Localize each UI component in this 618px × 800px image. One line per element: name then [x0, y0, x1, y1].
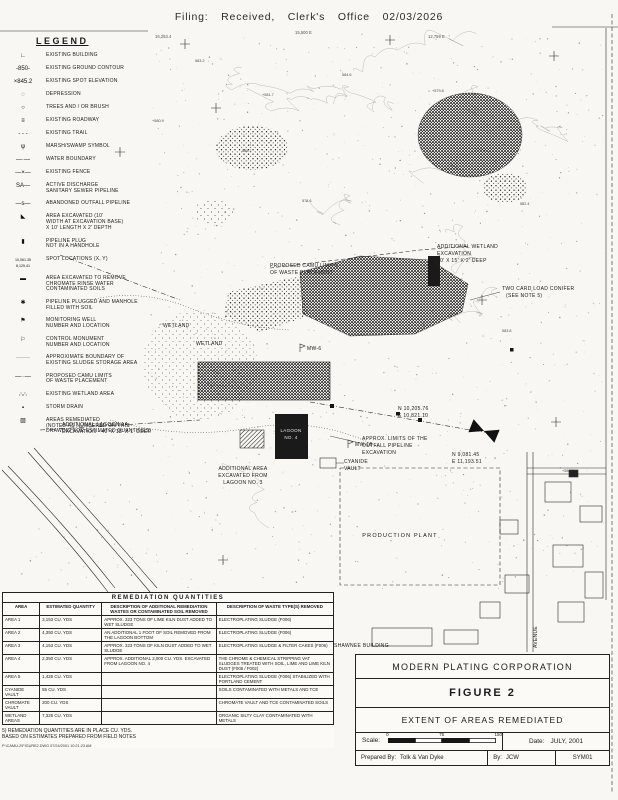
legend-item-label: WATER BOUNDARY	[46, 157, 96, 163]
table-cell: ELECTROPLATING SLUDGE (F006)	[216, 616, 333, 629]
table-cell: 55 CU. YDS	[40, 686, 102, 699]
legend-item-label: EXISTING ROADWAY	[46, 118, 99, 124]
excavated-arrow-icon: ◣	[6, 214, 40, 220]
pipeline-plug-icon: ▮	[6, 239, 40, 245]
depression-icon: ◌	[6, 92, 40, 98]
table-cell: AREA 3	[3, 642, 40, 655]
legend-item-label: MONITORING WELL NUMBER AND LOCATION	[46, 318, 110, 329]
date-cell: Date: JULY, 2001	[503, 733, 609, 750]
table-cell	[102, 712, 216, 725]
col-header-description: DESCRIPTION OF ADDITIONAL REMEDIATION WA…	[102, 603, 216, 616]
legend-item: —··—PROPOSED CAMU LIMITS OF WASTE PLACEM…	[6, 374, 176, 385]
brush-area-2	[216, 126, 288, 170]
roadway-southwest	[2, 448, 157, 592]
ground-contour-line	[334, 85, 394, 110]
camu-limits-label: PROPOSED CAMU LIMITS	[270, 263, 338, 269]
cad-footer: P:\CAMU-2\FIGURE2.DWG 07/24/2001 10:21:2…	[2, 744, 334, 748]
scale-bar-ticks: 0 75 150	[386, 732, 502, 737]
credits-row: Prepared By: Tolk & Van Dyke By: JCW SYM…	[356, 751, 609, 765]
legend-item-label: EXISTING BUILDING	[46, 53, 98, 59]
wetland-excavation-label: ADDITIONAL WETLAND	[437, 244, 498, 250]
scale-bar: 0 75 150	[388, 738, 496, 743]
legend-item-label: ACTIVE DISCHARGE SANITARY SEWER PIPELINE	[46, 183, 119, 194]
spot-coordinate-label: E 10,821.10	[398, 413, 428, 419]
spot-elevation-value: +581.7	[262, 93, 274, 97]
table-cell: APPROX. 323 TONS OF KILN DUST ADDED TO W…	[102, 642, 216, 655]
legend-item-label: DEPRESSION	[46, 92, 81, 98]
table-cell: APPROX. ADDITIONAL 2,000 CU. YDS. EXCAVA…	[102, 655, 216, 673]
trees-icon: ○	[6, 105, 40, 111]
table-cell: 4,350 CU. YDS	[40, 629, 102, 642]
by-value: JCW	[506, 755, 519, 761]
marsh-icon: ψ	[6, 144, 40, 150]
legend-item: —s—ABANDONED OUTFALL PIPELINE	[6, 201, 176, 207]
legend-item-label: EXISTING FENCE	[46, 170, 90, 176]
legend-item-label: TREES AND / OR BRUSH	[46, 105, 109, 111]
table-cell: WETLAND AREAS	[3, 712, 40, 725]
brush-area	[483, 173, 527, 203]
table-row: WETLAND AREAS7,325 CU. YDSORGANIC SILTY …	[3, 712, 334, 725]
table-cell: SOILS CONTAMINATED WITH METALS AND TCE	[216, 686, 333, 699]
spot-coordinate-label: N 9,081.45	[452, 452, 479, 458]
camu-limits-label: OF WASTE PLACEMENT	[270, 270, 333, 276]
fence-icon: —×—	[6, 170, 40, 176]
table-cell: APPROX. 323 TONS OF LIME KILN DUST ADDED…	[102, 616, 216, 629]
legend-item: ◌DEPRESSION	[6, 92, 176, 98]
avenue-street-label: AVENUE	[533, 626, 539, 648]
building-icon: ∟	[6, 53, 40, 59]
sewer-icon: SA—	[6, 183, 40, 189]
remediation-table: AREA ESTIMATED QUANTITY DESCRIPTION OF A…	[2, 602, 334, 725]
filing-stamp: Filing: Received, Clerk's Office 02/03/2…	[0, 11, 618, 23]
storm-drain-icon: ▪	[6, 405, 40, 411]
wetland-excavation-label: EXCAVATION	[437, 251, 471, 257]
drawing-number: SYM01	[573, 755, 593, 761]
production-plant-label: PRODUCTION PLANT	[362, 533, 437, 539]
ground-contour-line	[310, 194, 352, 225]
building-outlines	[372, 470, 603, 646]
table-header-row: AREA ESTIMATED QUANTITY DESCRIPTION OF A…	[3, 603, 334, 616]
spot-coordinates-icon: 10,061.35 8,125.41	[6, 257, 40, 269]
table-cell: AN ADDITIONAL 1 FOOT OF SOIL REMOVED FRO…	[102, 629, 216, 642]
table-cell: ELECTROPLATING SLUDGE (F006) STABILIZED …	[216, 673, 333, 686]
legend-item-label: AREAS REMEDIATED (NOTED AS NUMBERED ON T…	[46, 418, 151, 435]
table-title: REMEDIATION QUANTITIES	[2, 592, 334, 602]
spot-elevation-value: 583.8	[502, 329, 512, 333]
scale-tick: 0	[386, 732, 389, 737]
lagoon-3-label: EXCAVATED FROM	[218, 473, 267, 479]
ground-contour-line	[226, 67, 341, 93]
wetland-excavation-label: 40' X 15' X 2' DEEP	[437, 258, 487, 264]
table-row: AREA 34,153 CU. YDSAPPROX. 323 TONS OF K…	[3, 642, 334, 655]
table-row: AREA 24,350 CU. YDSAN ADDITIONAL 1 FOOT …	[3, 629, 334, 642]
legend-item: ○TREES AND / OR BRUSH	[6, 105, 176, 111]
table-cell: AREA 4	[3, 655, 40, 673]
legend-items: ∟EXISTING BUILDING-850-EXISTING GROUND C…	[6, 53, 176, 435]
lagoon-4-label: LAGOON	[280, 428, 301, 433]
table-cell	[102, 699, 216, 712]
storm-drain-symbol-2	[510, 348, 514, 352]
legend-item: ▨AREAS REMEDIATED (NOTED AS NUMBERED ON …	[6, 418, 176, 435]
sludge-boundary-icon: ·······	[6, 355, 40, 361]
spot-elevation-value: 583.2	[195, 59, 205, 63]
legend-item: ◣AREA EXCAVATED (10' WIDTH AT EXCAVATION…	[6, 214, 176, 231]
legend-item: ×845.2EXISTING SPOT ELEVATION	[6, 79, 176, 85]
legend-item-label: SPOT LOCATIONS (X, Y)	[46, 257, 108, 263]
legend-item-label: AREA EXCAVATED (10' WIDTH AT EXCAVATION …	[46, 214, 123, 231]
cyanide-vault-box	[320, 458, 336, 468]
table-cell: ORGANIC SILTY CLAY CONTAMINATED WITH MET…	[216, 712, 333, 725]
table-cell: CHROMATE VAULT	[3, 699, 40, 712]
title-block: MODERN PLATING CORPORATION FIGURE 2 EXTE…	[355, 654, 610, 766]
legend-item: -850-EXISTING GROUND CONTOUR	[6, 66, 176, 72]
table-cell	[102, 673, 216, 686]
legend-item-label: AREA EXCAVATED TO REMOVE CHROMATE RINSE …	[46, 276, 126, 293]
table-cell: ELECTROPLATING SLUDGE & FILTER CAKES (F0…	[216, 642, 333, 655]
wetland-label-2: WETLAND	[196, 341, 223, 347]
legend-item-label: PIPELINE PLUGGED AND MANHOLE FILLED WITH…	[46, 300, 138, 311]
prepared-by-value: Tolk & Van Dyke	[400, 755, 444, 761]
lagoon-4-label: NO. 4	[284, 435, 297, 440]
spot-elevation-value: 582.4	[520, 202, 530, 206]
grid-coordinate-label: 12,759 E	[428, 34, 445, 39]
wetland-area-icon: ∴∴	[6, 392, 40, 398]
table-cell: THE CHROME & CHEMICAL STRIPPING VAT SLUD…	[216, 655, 333, 673]
table-cell: 4,153 CU. YDS	[40, 642, 102, 655]
chromate-area-icon: ▬	[6, 276, 40, 282]
legend-item: - - -EXISTING TRAIL	[6, 131, 176, 137]
lagoon-3-label: LAGOON NO. 3	[223, 480, 262, 486]
cyanide-vault-label: CYANIDE	[344, 459, 368, 465]
table-row: AREA 42,350 CU. YDSAPPROX. ADDITIONAL 2,…	[3, 655, 334, 673]
tree-cluster-area	[418, 93, 522, 177]
legend-item: ▬AREA EXCAVATED TO REMOVE CHROMATE RINSE…	[6, 276, 176, 293]
monitoring-well-icon: ⚑	[6, 318, 40, 324]
table-cell: 200 CU. YDS	[40, 699, 102, 712]
legend-item: ·······APPROXIMATE BOUNDARY OF EXISTING …	[6, 355, 176, 366]
roadway-icon: ≡	[6, 118, 40, 124]
note5-label: (SEE NOTE 5)	[506, 293, 542, 299]
note5-leader	[470, 292, 500, 300]
col-header-waste-type: DESCRIPTION OF WASTE TYPE(S) REMOVED	[216, 603, 333, 616]
table-cell: CYANIDE VAULT	[3, 686, 40, 699]
ground-contour-line	[247, 88, 348, 111]
areas-remediated-icon: ▨	[6, 418, 40, 424]
scale-tick: 75	[439, 732, 444, 737]
table-note: 5) REMEDIATION QUANTITIES ARE IN PLACE C…	[2, 728, 334, 740]
control-monument-icon: ⚐	[6, 337, 40, 343]
table-row: CYANIDE VAULT55 CU. YDSSOILS CONTAMINATE…	[3, 686, 334, 699]
table-row: AREA 13,153 CU. YDSAPPROX. 323 TONS OF L…	[3, 616, 334, 629]
legend-item: —·—WATER BOUNDARY	[6, 157, 176, 163]
table-cell	[102, 686, 216, 699]
trail-icon: - - -	[6, 131, 40, 137]
remediation-quantities-panel: REMEDIATION QUANTITIES AREA ESTIMATED QU…	[2, 592, 334, 748]
legend-item-label: EXISTING SPOT ELEVATION	[46, 79, 118, 85]
table-cell: 1,426 CU. YDS	[40, 673, 102, 686]
lagoon-1a-area	[198, 362, 330, 400]
legend-item: SA—ACTIVE DISCHARGE SANITARY SEWER PIPEL…	[6, 183, 176, 194]
outfall-icon: —s—	[6, 201, 40, 207]
legend-item: 10,061.35 8,125.41SPOT LOCATIONS (X, Y)	[6, 257, 176, 269]
scale-label: Scale:	[362, 737, 380, 744]
table-cell: AREA 5	[3, 673, 40, 686]
spot-elevation-icon: ×845.2	[6, 79, 40, 85]
legend-item: ∴∴EXISTING WETLAND AREA	[6, 392, 176, 398]
spot-coordinate-label: N 10,205.76	[398, 406, 429, 412]
shawnee-building-label: SHAWNEE BUILDING	[334, 643, 389, 649]
table-cell: AREA 2	[3, 629, 40, 642]
legend-item-label: ABANDONED OUTFALL PIPELINE	[46, 201, 130, 207]
table-cell: 7,325 CU. YDS	[40, 712, 102, 725]
scale-tick: 150	[495, 732, 503, 737]
legend-item-label: PROPOSED CAMU LIMITS OF WASTE PLACEMENT	[46, 374, 112, 385]
legend: LEGEND ∟EXISTING BUILDING-850-EXISTING G…	[6, 36, 176, 442]
legend-item-label: APPROXIMATE BOUNDARY OF EXISTING SLUDGE …	[46, 355, 137, 366]
prepared-by-label: Prepared By:	[361, 755, 396, 761]
date-value: JULY, 2001	[550, 738, 583, 745]
company-name: MODERN PLATING CORPORATION	[356, 655, 609, 679]
table-cell: 2,350 CU. YDS	[40, 655, 102, 673]
legend-item: ⚐CONTROL MONUMENT NUMBER AND LOCATION	[6, 337, 176, 348]
lagoon-3-area	[240, 430, 264, 448]
figure-title: EXTENT OF AREAS REMEDIATED	[356, 708, 609, 733]
pipeline-plug	[330, 404, 334, 408]
legend-item: ▮PIPELINE PLUG NOT IN A HANDHOLE	[6, 239, 176, 250]
spot-elevation-value: +579.8	[432, 89, 444, 93]
excavated-area-symbol	[468, 419, 499, 442]
col-header-quantity: ESTIMATED QUANTITY	[40, 603, 102, 616]
table-cell: 3,153 CU. YDS	[40, 616, 102, 629]
note5-label: TWO CARD LOAD CONIFER	[502, 286, 575, 292]
ground-contour-line	[353, 30, 476, 72]
legend-item-label: STORM DRAIN	[46, 405, 83, 411]
legend-item: —×—EXISTING FENCE	[6, 170, 176, 176]
legend-item-label: EXISTING GROUND CONTOUR	[46, 66, 124, 72]
legend-item-label: PIPELINE PLUG NOT IN A HANDHOLE	[46, 239, 100, 250]
water-boundary-icon: —·—	[6, 157, 40, 163]
manhole-filled-icon: ✱	[6, 300, 40, 306]
legend-item-label: EXISTING TRAIL	[46, 131, 88, 137]
remediation-table-body: AREA 13,153 CU. YDSAPPROX. 323 TONS OF L…	[3, 616, 334, 725]
legend-item: ✱PIPELINE PLUGGED AND MANHOLE FILLED WIT…	[6, 300, 176, 311]
lagoon-3-label: ADDITIONAL AREA	[218, 466, 267, 472]
table-row: CHROMATE VAULT200 CU. YDSCHROMATE VAULT …	[3, 699, 334, 712]
scale-cell: Scale: 0 75 150	[356, 733, 503, 750]
spot-elevation-value: 584.6	[342, 73, 352, 77]
table-cell: ELECTROPLATING SLUDGE (F006)	[216, 629, 333, 642]
by-label: By:	[493, 755, 502, 761]
grid-coordinate-label: 15,500 E	[295, 30, 312, 35]
legend-title: LEGEND	[36, 36, 176, 46]
brush-area-3	[194, 199, 234, 225]
monitoring-well-label: MW-16	[355, 442, 373, 448]
table-cell: CHROMATE VAULT AND TCE CONTAMINATED SOIL…	[216, 699, 333, 712]
monitoring-well-label: MW-6	[307, 346, 321, 352]
legend-item-label: CONTROL MONUMENT NUMBER AND LOCATION	[46, 337, 110, 348]
outfall-limits-label: EXCAVATION	[362, 450, 396, 456]
cyanide-vault-label: VAULT	[344, 466, 361, 472]
legend-item-label: MARSH/SWAMP SYMBOL	[46, 144, 110, 150]
legend-item: ▪STORM DRAIN	[6, 405, 176, 411]
spot-coordinate-label: E 11,193.51	[452, 459, 482, 465]
date-label: Date:	[529, 738, 545, 745]
legend-item: ψMARSH/SWAMP SYMBOL	[6, 144, 176, 150]
legend-item-label: EXISTING WETLAND AREA	[46, 392, 114, 398]
legend-item: ⚑MONITORING WELL NUMBER AND LOCATION	[6, 318, 176, 329]
col-header-area: AREA	[3, 603, 40, 616]
table-row: AREA 51,426 CU. YDSELECTROPLATING SLUDGE…	[3, 673, 334, 686]
legend-item: ∟EXISTING BUILDING	[6, 53, 176, 59]
contour-icon: -850-	[6, 66, 40, 72]
table-cell: AREA 1	[3, 616, 40, 629]
production-plant-boundary	[340, 468, 500, 585]
legend-item: ≡EXISTING ROADWAY	[6, 118, 176, 124]
figure-number: FIGURE 2	[356, 679, 609, 708]
camu-limits-icon: —··—	[6, 374, 40, 380]
